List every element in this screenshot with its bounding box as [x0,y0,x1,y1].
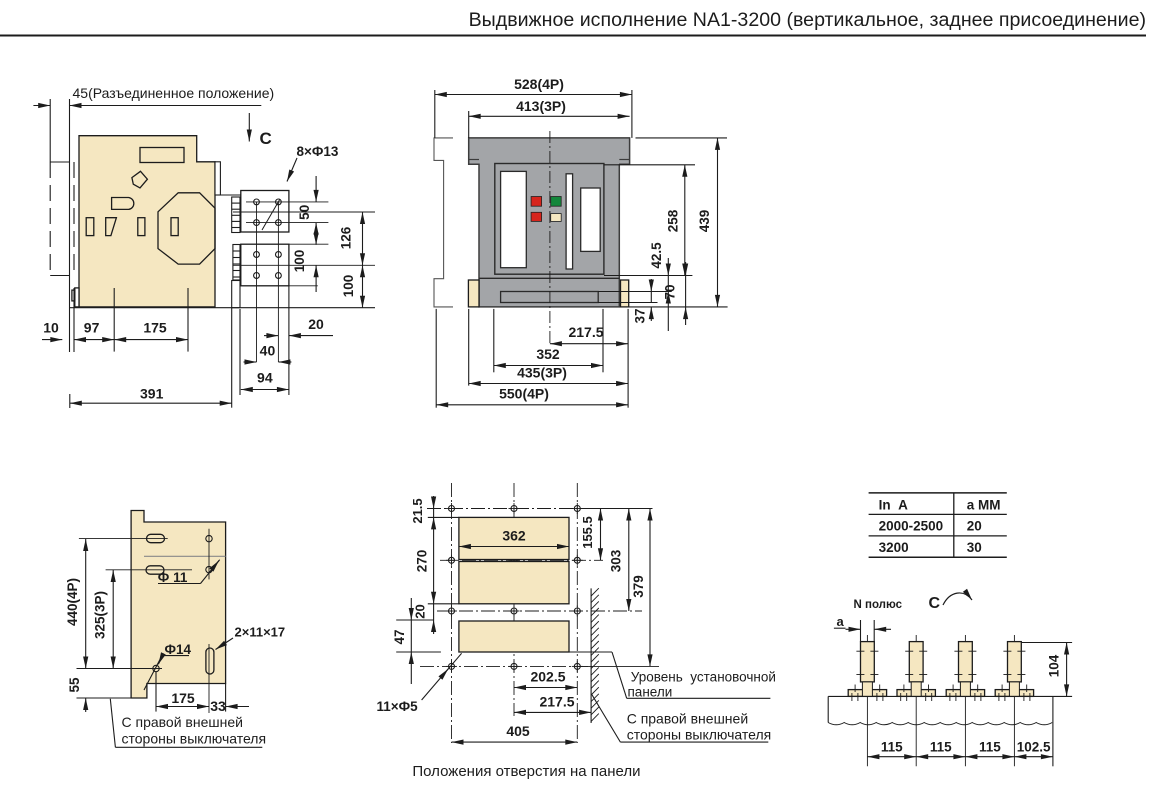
svg-text:440(4P): 440(4P) [65,578,80,626]
svg-text:104: 104 [1047,654,1062,677]
svg-text:435(3P): 435(3P) [517,365,567,381]
svg-text:528(4P): 528(4P) [514,76,564,92]
svg-text:20: 20 [967,519,982,534]
svg-text:391: 391 [140,386,164,402]
svg-text:33: 33 [210,698,226,714]
svg-text:2000-2500: 2000-2500 [879,519,944,534]
svg-text:2×11×17: 2×11×17 [235,625,286,640]
svg-text:155.5: 155.5 [580,516,595,549]
svg-text:Выдвижное исполнение NA1-3200: Выдвижное исполнение NA1-3200 (вертикаль… [469,9,1146,31]
svg-text:413(3P): 413(3P) [516,98,566,114]
svg-text:202.5: 202.5 [530,669,565,685]
svg-text:С: С [260,129,272,148]
svg-text:102.5: 102.5 [1017,740,1051,755]
svg-text:352: 352 [536,346,560,362]
svg-text:стороны выключателя: стороны выключателя [122,731,267,747]
svg-text:Положения отверстия на панели: Положения отверстия на панели [412,763,640,780]
svg-text:37: 37 [633,308,648,323]
svg-text:217.5: 217.5 [568,324,603,340]
svg-text:С: С [929,595,941,612]
svg-text:10: 10 [43,320,59,336]
svg-text:550(4P): 550(4P) [499,386,549,402]
svg-text:303: 303 [609,549,624,572]
svg-text:115: 115 [979,740,1001,755]
svg-text:21.5: 21.5 [410,498,425,523]
svg-text:40: 40 [260,343,276,359]
svg-text:Уровень установочной: Уровень установочной [631,670,776,685]
svg-text:45(Разъединенное положение): 45(Разъединенное положение) [73,85,275,101]
svg-text:115: 115 [930,740,952,755]
svg-text:270: 270 [415,550,430,573]
svg-text:97: 97 [84,320,100,336]
svg-text:N полюс: N полюс [854,599,903,611]
svg-text:панели: панели [628,684,673,699]
svg-text:стороны выключателя: стороны выключателя [627,726,772,742]
svg-text:20: 20 [308,316,324,332]
svg-text:Ф14: Ф14 [165,642,192,657]
svg-text:362: 362 [502,528,526,544]
svg-text:20: 20 [413,604,428,618]
svg-text:С правой внешней: С правой внешней [627,711,748,727]
svg-text:175: 175 [143,320,167,336]
svg-text:405: 405 [506,723,530,739]
svg-text:С правой внешней: С правой внешней [122,714,243,730]
svg-text:47: 47 [392,629,407,644]
svg-text:50: 50 [297,205,312,220]
svg-text:115: 115 [881,740,903,755]
svg-text:8×Ф13: 8×Ф13 [297,144,339,159]
svg-text:258: 258 [666,209,681,232]
svg-text:94: 94 [257,370,273,386]
svg-text:30: 30 [967,540,982,555]
svg-text:42.5: 42.5 [649,242,664,269]
svg-text:Ф 11: Ф 11 [158,570,188,585]
svg-text:439: 439 [697,210,712,233]
svg-text:a MM: a MM [967,498,1001,513]
svg-text:70: 70 [663,284,678,299]
svg-text:325(3P): 325(3P) [93,591,108,639]
svg-text:175: 175 [171,690,195,706]
svg-text:100: 100 [292,250,307,273]
svg-text:217.5: 217.5 [539,694,574,710]
svg-text:a: a [837,614,845,629]
svg-text:379: 379 [631,575,646,598]
svg-text:11×Ф5: 11×Ф5 [377,699,419,714]
svg-text:In A: In A [879,498,908,513]
svg-text:126: 126 [339,226,354,249]
svg-text:3200: 3200 [879,540,909,555]
svg-text:100: 100 [341,275,356,298]
svg-text:55: 55 [67,677,82,693]
